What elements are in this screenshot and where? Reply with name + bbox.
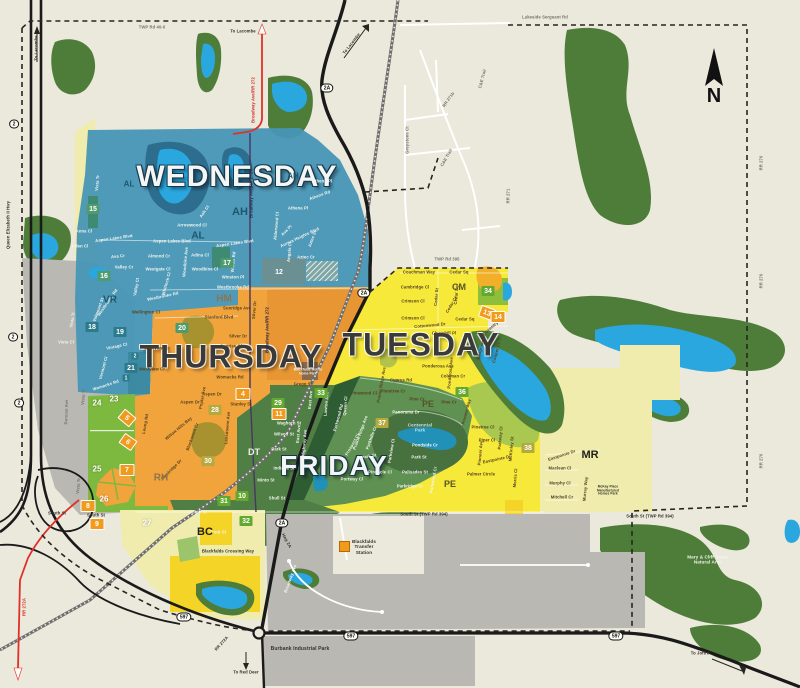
site-number-badge: 10 bbox=[236, 491, 249, 501]
north-label: N bbox=[707, 85, 721, 106]
route-shield: 2 bbox=[14, 399, 24, 408]
blackfalds-collection-zone-map: N WEDNESDAY THURSDAY TUESDAY FRIDAY TWP … bbox=[0, 0, 800, 688]
site-number-badge: 16 bbox=[98, 271, 111, 281]
site-number-badge: 19 bbox=[114, 327, 127, 337]
site-number-badge: 34 bbox=[482, 286, 495, 296]
area-code-label: MR bbox=[581, 449, 598, 461]
site-number-badge: 15 bbox=[87, 204, 100, 214]
area-code-label: AL bbox=[191, 231, 204, 242]
route-shield: 2A bbox=[320, 84, 333, 93]
area-code-label: PE bbox=[422, 399, 434, 409]
site-number-badge: 7 bbox=[120, 464, 135, 476]
site-number-badge: 28 bbox=[209, 405, 222, 415]
site-number-badge: 30 bbox=[202, 456, 215, 466]
zone-title-tuesday: TUESDAY bbox=[343, 327, 500, 364]
site-number-badge: 25 bbox=[93, 465, 102, 474]
site-number-badge: 4 bbox=[236, 388, 251, 400]
site-number-badge: 24 bbox=[93, 399, 102, 408]
site-number-badge: 1 bbox=[123, 375, 130, 382]
route-shield: 597 bbox=[608, 632, 623, 641]
area-code-label: CM bbox=[452, 282, 466, 292]
site-number-badge: 17 bbox=[221, 258, 234, 268]
route-shield: 597 bbox=[176, 613, 191, 622]
site-number-badge: 38 bbox=[522, 443, 535, 453]
site-number-badge: 31 bbox=[218, 496, 231, 506]
area-code-label: AL bbox=[124, 180, 135, 189]
site-number-badge: 9 bbox=[90, 518, 105, 530]
area-code-label: RH bbox=[154, 473, 168, 484]
site-number-badge: 27 bbox=[143, 519, 152, 528]
route-shield: 2 bbox=[8, 333, 18, 342]
site-number-badge: 2 bbox=[132, 353, 139, 360]
site-number-badge: 11 bbox=[272, 408, 287, 420]
site-number-badge: 20 bbox=[176, 323, 189, 333]
route-shield: 597 bbox=[343, 632, 358, 641]
area-code-label: PE bbox=[444, 479, 456, 489]
site-number-badge: 18 bbox=[86, 322, 99, 332]
route-shield: 2 bbox=[9, 120, 19, 129]
area-code-label: VR bbox=[103, 295, 117, 306]
area-code-label: AH bbox=[232, 206, 248, 218]
zone-title-friday: FRIDAY bbox=[280, 450, 388, 482]
site-number-badge: 37 bbox=[376, 418, 389, 428]
area-code-label: DT bbox=[248, 447, 260, 457]
area-code-label: HM bbox=[216, 294, 232, 305]
area-code-label: AH bbox=[287, 172, 299, 181]
zone-title-thursday: THURSDAY bbox=[140, 339, 323, 376]
site-number-badge: 8 bbox=[81, 500, 96, 512]
site-number-badge: 12 bbox=[268, 267, 290, 277]
site-number-badge: 32 bbox=[240, 516, 253, 526]
zone-title-wednesday: WEDNESDAY bbox=[136, 160, 337, 194]
transfer-station-icon bbox=[339, 541, 350, 552]
site-number-badge: 14 bbox=[491, 311, 506, 323]
route-shield: 2A bbox=[357, 289, 370, 298]
area-code-label: BC bbox=[197, 526, 213, 538]
site-number-badge: 26 bbox=[100, 495, 109, 504]
north-arrow-icon: N bbox=[694, 46, 734, 106]
site-number-badge: 33 bbox=[315, 388, 328, 398]
site-number-badge: 29 bbox=[272, 398, 285, 408]
site-number-badge: 36 bbox=[456, 387, 469, 397]
site-number-badge: 23 bbox=[110, 395, 119, 404]
route-shield: 2A bbox=[275, 519, 288, 528]
site-number-badge: 21 bbox=[125, 363, 138, 373]
